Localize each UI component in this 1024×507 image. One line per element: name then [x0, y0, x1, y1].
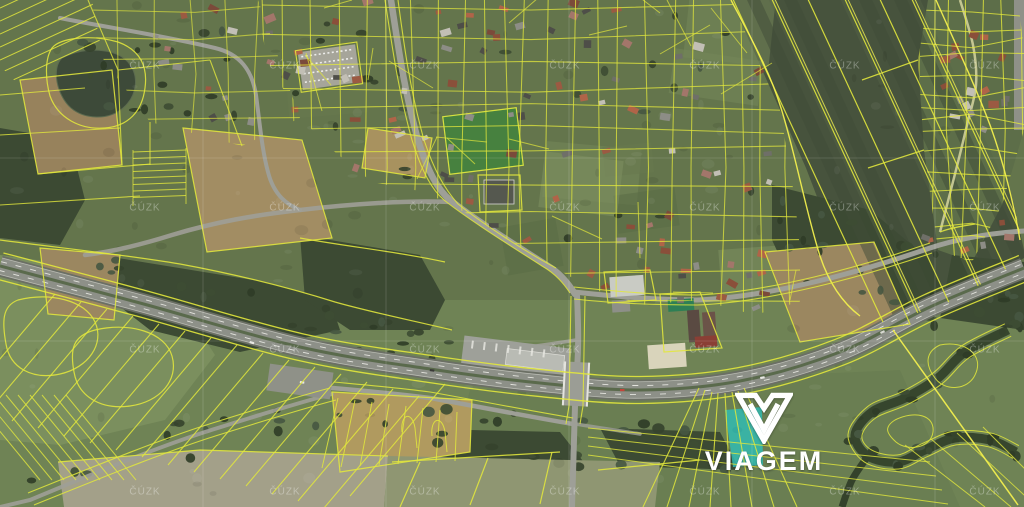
grave-marker — [350, 57, 352, 59]
texture-noise — [883, 51, 887, 62]
building — [678, 273, 686, 278]
texture-noise — [648, 198, 655, 204]
texture-noise — [183, 413, 190, 422]
texture-noise — [150, 132, 161, 139]
grave-marker — [322, 79, 324, 81]
grave-marker — [331, 78, 333, 80]
grave-marker — [321, 70, 323, 72]
texture-noise — [528, 455, 536, 458]
tree — [330, 330, 342, 334]
building — [727, 261, 734, 268]
texture-noise — [156, 243, 167, 250]
tree — [485, 444, 498, 451]
texture-noise — [20, 152, 29, 162]
building — [164, 46, 171, 52]
tree — [360, 322, 368, 328]
building — [205, 86, 211, 90]
tree — [174, 420, 185, 427]
texture-noise — [834, 166, 840, 174]
tree — [316, 38, 325, 44]
grave-marker — [323, 53, 325, 55]
texture-noise — [328, 121, 335, 125]
texture-noise — [430, 111, 441, 114]
texture-noise — [76, 219, 83, 229]
tree — [1005, 290, 1011, 296]
grave-marker — [312, 71, 314, 73]
tree — [974, 307, 985, 318]
tree — [480, 418, 489, 423]
grave-marker — [353, 74, 355, 76]
building — [448, 144, 455, 151]
tree — [164, 103, 174, 110]
tree — [158, 82, 168, 88]
satellite-map-canvas[interactable]: ČÚZKČÚZKČÚZKČÚZKČÚZKČÚZKČÚZKČÚZKČÚZKČÚZK… — [0, 0, 1024, 507]
building — [659, 238, 665, 246]
tree — [638, 419, 650, 428]
grave-marker — [347, 67, 349, 69]
texture-noise — [271, 50, 281, 53]
tree — [274, 418, 286, 424]
grave-marker — [314, 54, 316, 56]
texture-noise — [489, 260, 493, 265]
vehicle — [620, 389, 625, 391]
grave-marker — [348, 75, 350, 77]
texture-noise — [989, 395, 995, 403]
tree — [223, 58, 230, 62]
tree — [898, 389, 910, 395]
tree — [930, 321, 938, 332]
tree — [108, 270, 116, 274]
texture-noise — [303, 473, 315, 484]
grave-marker — [308, 72, 310, 74]
tree — [369, 325, 377, 330]
texture-noise — [295, 225, 309, 235]
tree — [649, 60, 656, 68]
tree — [96, 263, 104, 271]
building — [626, 224, 635, 229]
texture-noise — [642, 121, 652, 130]
school-building — [484, 180, 514, 204]
tree — [872, 408, 880, 415]
tree — [800, 236, 806, 245]
grave-marker — [337, 59, 339, 61]
texture-noise — [119, 274, 126, 282]
tree — [247, 288, 255, 296]
grave-marker — [324, 61, 326, 63]
tree — [933, 251, 939, 258]
texture-noise — [106, 80, 111, 90]
texture-noise — [193, 481, 202, 486]
field-patch — [538, 151, 623, 216]
texture-noise — [98, 412, 105, 422]
tree — [274, 426, 283, 436]
texture-noise — [469, 194, 473, 198]
building — [291, 107, 298, 113]
viagem-logo: VIAGEM — [694, 392, 834, 477]
aerial-imagery-layer — [0, 0, 1024, 507]
tree — [414, 329, 424, 336]
tree — [926, 447, 933, 454]
texture-noise — [407, 153, 412, 160]
texture-noise — [838, 413, 849, 418]
texture-noise — [10, 187, 24, 194]
tree — [859, 290, 867, 295]
texture-noise — [553, 458, 564, 468]
building — [1004, 234, 1015, 241]
texture-noise — [631, 152, 642, 156]
grave-marker — [329, 60, 331, 62]
texture-noise — [29, 384, 35, 388]
texture-noise — [353, 288, 363, 299]
tree — [205, 94, 217, 99]
texture-noise — [170, 42, 176, 45]
building — [493, 34, 501, 41]
texture-noise — [284, 250, 292, 254]
building — [584, 40, 592, 48]
texture-noise — [502, 266, 510, 275]
tree — [601, 66, 609, 76]
tree — [747, 94, 753, 100]
tree — [407, 330, 415, 337]
texture-noise — [713, 123, 725, 129]
texture-noise — [236, 191, 240, 195]
grave-marker — [319, 53, 321, 55]
grave-marker — [333, 60, 335, 62]
tree — [325, 311, 335, 320]
tree — [206, 289, 215, 296]
tree — [324, 22, 331, 27]
tree — [292, 90, 299, 96]
texture-noise — [103, 148, 115, 157]
texture-noise — [413, 4, 424, 14]
tree — [638, 109, 651, 114]
grave-marker — [320, 62, 322, 64]
grave-marker — [330, 69, 332, 71]
tree — [780, 196, 786, 206]
grave-marker — [332, 51, 334, 53]
tree — [877, 286, 883, 295]
grave-marker — [343, 67, 345, 69]
grave-marker — [336, 51, 338, 53]
grave-marker — [349, 49, 351, 51]
tree — [956, 349, 962, 356]
tree — [818, 211, 825, 219]
grave-marker — [334, 68, 336, 70]
tree — [312, 422, 319, 431]
texture-noise — [348, 211, 361, 220]
grave-marker — [327, 52, 329, 54]
grave-marker — [345, 50, 347, 52]
grave-marker — [315, 62, 317, 64]
building — [999, 220, 1005, 226]
texture-noise — [201, 292, 207, 303]
texture-noise — [407, 165, 414, 173]
grave-marker — [318, 79, 320, 81]
tree — [998, 298, 1010, 303]
tree — [440, 404, 452, 415]
tree — [199, 29, 210, 37]
texture-noise — [132, 85, 137, 89]
building — [508, 112, 514, 117]
building — [980, 34, 988, 40]
texture-noise — [232, 155, 243, 160]
texture-noise — [705, 186, 718, 194]
grave-marker — [325, 70, 327, 72]
texture-noise — [702, 159, 715, 169]
texture-noise — [132, 1, 142, 10]
tree — [219, 26, 225, 36]
building — [988, 101, 999, 108]
commercial-building — [609, 275, 644, 297]
building — [677, 297, 684, 303]
building — [466, 198, 474, 205]
texture-noise — [809, 384, 822, 389]
texture-noise — [273, 279, 283, 283]
grave-marker — [301, 56, 303, 58]
texture-noise — [349, 269, 362, 275]
building — [763, 151, 772, 156]
building — [660, 247, 671, 254]
football-pitch — [443, 108, 524, 175]
viagem-logo-text: VIAGEM — [694, 446, 834, 477]
tree — [846, 219, 858, 225]
grave-marker — [342, 59, 344, 61]
texture-noise — [352, 140, 364, 144]
building — [746, 272, 752, 278]
tree — [652, 423, 664, 433]
building — [350, 117, 361, 122]
texture-noise — [439, 222, 450, 227]
texture-noise — [132, 222, 138, 230]
texture-noise — [307, 125, 321, 130]
paved-yard — [647, 343, 687, 370]
tree — [627, 435, 640, 441]
texture-noise — [210, 491, 217, 496]
tree — [141, 104, 148, 114]
tree — [493, 417, 502, 427]
tree — [397, 341, 409, 345]
tree — [288, 323, 297, 328]
grave-marker — [340, 50, 342, 52]
building — [466, 13, 474, 18]
tree — [149, 42, 161, 47]
texture-noise — [137, 279, 144, 287]
tree — [378, 317, 385, 326]
texture-noise — [580, 199, 591, 206]
texture-noise — [845, 366, 852, 371]
tree — [27, 478, 36, 484]
tree — [777, 217, 783, 225]
grave-marker — [305, 81, 307, 83]
building — [681, 269, 692, 274]
tree — [698, 62, 703, 71]
texture-noise — [563, 70, 573, 79]
building — [447, 80, 457, 88]
tree — [177, 282, 187, 291]
texture-noise — [876, 19, 882, 24]
texture-noise — [852, 74, 857, 82]
building — [401, 88, 407, 95]
texture-noise — [353, 108, 362, 116]
tree — [999, 328, 1006, 335]
tree — [100, 61, 107, 70]
texture-noise — [871, 102, 881, 110]
texture-noise — [880, 125, 894, 129]
grave-marker — [346, 58, 348, 60]
viagem-gem-icon — [735, 392, 793, 444]
tree — [103, 102, 115, 110]
grave-marker — [351, 66, 353, 68]
tree — [304, 327, 317, 331]
tree — [186, 453, 196, 463]
texture-noise — [445, 415, 453, 422]
texture-noise — [280, 265, 292, 270]
texture-noise — [499, 223, 507, 227]
texture-noise — [17, 282, 21, 290]
texture-noise — [347, 174, 357, 177]
tree — [962, 352, 973, 359]
texture-noise — [889, 224, 893, 231]
tree — [367, 398, 375, 404]
texture-noise — [83, 176, 93, 183]
tree — [184, 110, 192, 116]
tree — [77, 39, 88, 46]
